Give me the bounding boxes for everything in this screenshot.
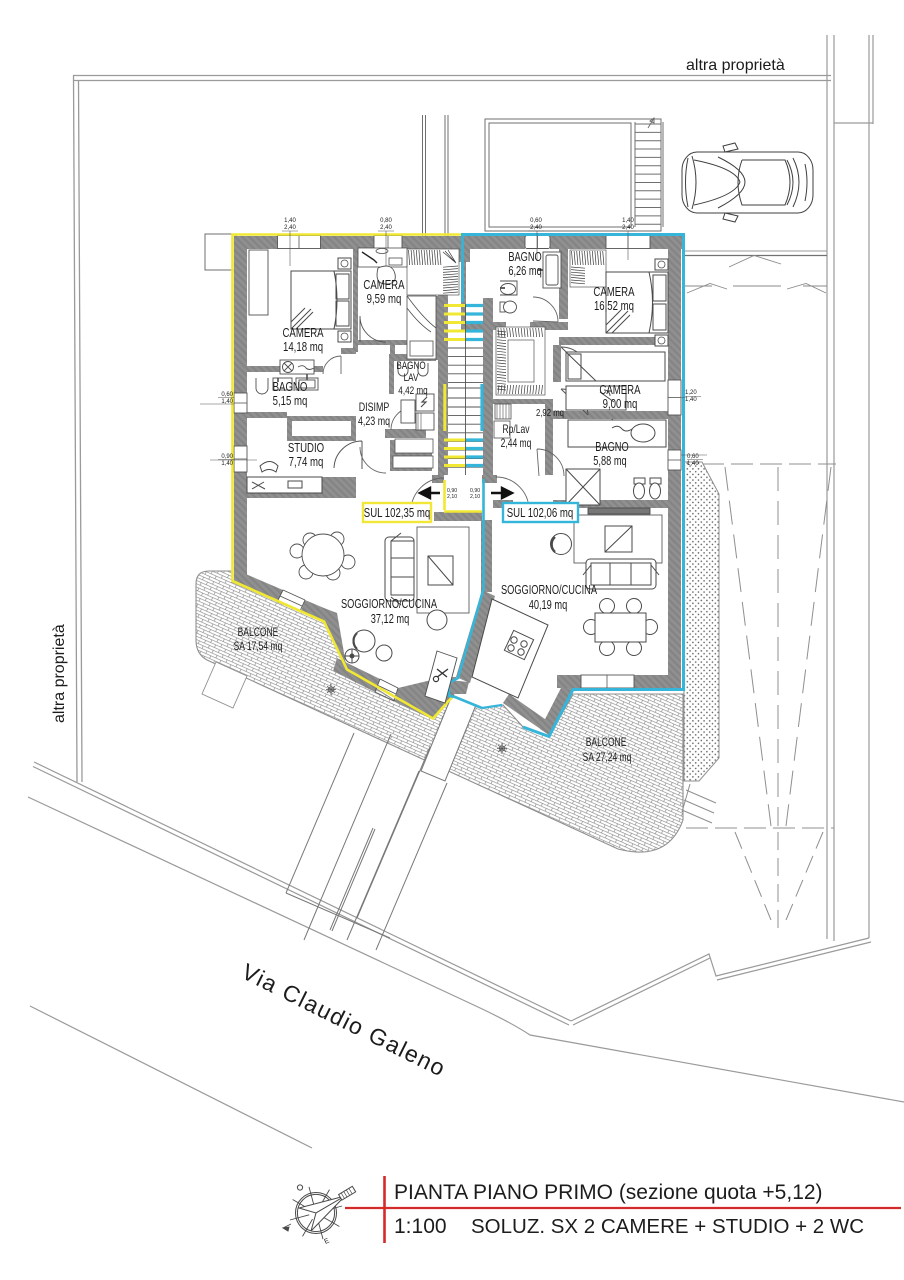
svg-text:0,80: 0,80 xyxy=(380,218,392,224)
svg-text:7,74 mq: 7,74 mq xyxy=(289,456,324,470)
svg-text:2,10: 2,10 xyxy=(447,494,457,500)
svg-text:2,40: 2,40 xyxy=(622,225,634,231)
svg-text:SOGGIORNO/CUCINA: SOGGIORNO/CUCINA xyxy=(501,584,598,598)
svg-text:40,19 mq: 40,19 mq xyxy=(529,599,568,613)
svg-text:BALCONE: BALCONE xyxy=(586,737,627,750)
svg-text:SUL 102,35 mq: SUL 102,35 mq xyxy=(364,507,430,521)
svg-text:1,40: 1,40 xyxy=(284,218,296,224)
svg-text:0,60: 0,60 xyxy=(530,218,542,224)
svg-text:BALCONE: BALCONE xyxy=(238,627,279,640)
svg-text:LAV: LAV xyxy=(404,372,419,385)
svg-text:5,88 mq: 5,88 mq xyxy=(593,455,626,469)
svg-text:2,10: 2,10 xyxy=(470,494,480,500)
svg-text:Via Claudio Galeno: Via Claudio Galeno xyxy=(238,958,451,1082)
svg-text:2,40: 2,40 xyxy=(380,225,392,231)
svg-text:STUDIO: STUDIO xyxy=(288,442,324,456)
svg-text:1,40: 1,40 xyxy=(685,397,697,403)
svg-text:0,90: 0,90 xyxy=(221,454,233,460)
svg-text:BAGNO: BAGNO xyxy=(273,381,308,395)
svg-text:CAMERA: CAMERA xyxy=(282,327,323,341)
svg-text:2,40: 2,40 xyxy=(284,225,296,231)
svg-text:9,00 mq: 9,00 mq xyxy=(603,398,638,412)
svg-text:altra proprietà: altra proprietà xyxy=(686,57,785,74)
svg-text:BAGNO: BAGNO xyxy=(396,360,426,373)
svg-text:PIANTA PIANO PRIMO (sezione qu: PIANTA PIANO PRIMO (sezione quota +5,12) xyxy=(394,1181,823,1204)
svg-text:SUL 102,06 mq: SUL 102,06 mq xyxy=(507,507,573,521)
svg-text:DISIMP: DISIMP xyxy=(359,401,390,415)
svg-text:Rp/Lav: Rp/Lav xyxy=(503,424,531,437)
svg-text:14,18 mq: 14,18 mq xyxy=(283,341,323,355)
svg-text:SA 17,54 mq: SA 17,54 mq xyxy=(234,641,283,654)
svg-text:SOLUZ. SX 2 CAMERE + STUDIO +: SOLUZ. SX 2 CAMERE + STUDIO + 2 WC xyxy=(471,1215,864,1238)
svg-text:1:100: 1:100 xyxy=(394,1215,447,1238)
svg-text:1,20: 1,20 xyxy=(685,390,697,396)
svg-text:CAMERA: CAMERA xyxy=(363,279,404,293)
svg-text:2,92 mq: 2,92 mq xyxy=(536,407,564,418)
svg-text:2,40: 2,40 xyxy=(530,225,542,231)
svg-text:16,52 mq: 16,52 mq xyxy=(594,300,634,314)
svg-text:altra proprietà: altra proprietà xyxy=(51,624,68,723)
svg-text:9,59 mq: 9,59 mq xyxy=(367,293,402,307)
svg-text:2,44 mq: 2,44 mq xyxy=(501,438,532,451)
svg-text:E: E xyxy=(323,1237,330,1245)
svg-text:4,23 mq: 4,23 mq xyxy=(358,415,390,429)
svg-text:1,40: 1,40 xyxy=(687,461,699,467)
svg-text:SA 27,24 mq: SA 27,24 mq xyxy=(583,752,632,765)
svg-text:1,40: 1,40 xyxy=(221,461,233,467)
svg-text:BAGNO: BAGNO xyxy=(595,441,629,455)
svg-text:37,12 mq: 37,12 mq xyxy=(371,613,410,627)
svg-text:0,60: 0,60 xyxy=(221,392,233,398)
svg-text:CAMERA: CAMERA xyxy=(593,286,634,300)
svg-text:1,40: 1,40 xyxy=(622,218,634,224)
svg-text:CAMERA: CAMERA xyxy=(599,384,640,398)
svg-text:4,42 mq: 4,42 mq xyxy=(398,385,427,398)
svg-text:SOGGIORNO/CUCINA: SOGGIORNO/CUCINA xyxy=(341,598,438,612)
svg-text:6,26 mq: 6,26 mq xyxy=(508,265,541,279)
svg-text:5,15 mq: 5,15 mq xyxy=(273,395,308,409)
